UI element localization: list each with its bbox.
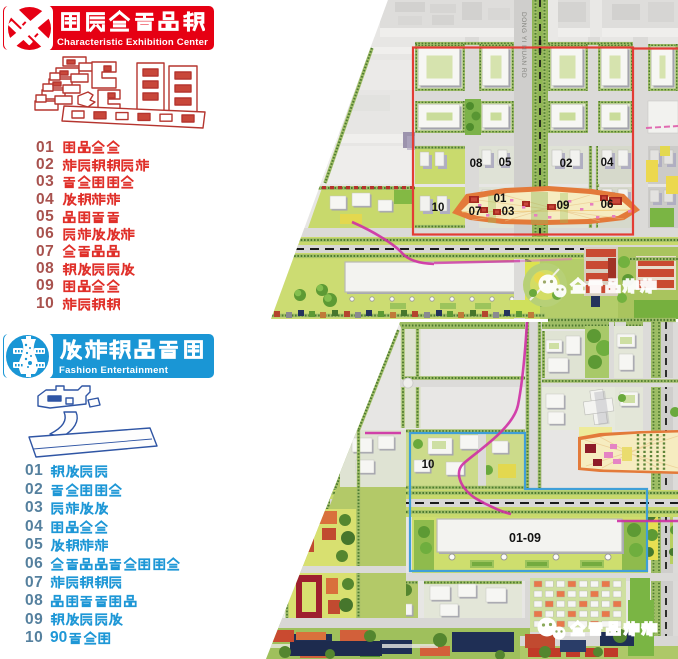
svg-text:06: 06 xyxy=(601,199,614,211)
svg-text:10: 10 xyxy=(432,202,445,214)
svg-text:DONG YI HUAN RD: DONG YI HUAN RD xyxy=(520,12,527,78)
svg-text:01-09: 01-09 xyxy=(509,531,541,545)
svg-text:07: 07 xyxy=(469,206,482,218)
svg-text:02: 02 xyxy=(560,158,573,170)
svg-text:10: 10 xyxy=(422,459,435,471)
svg-text:01: 01 xyxy=(494,193,507,205)
svg-text:09: 09 xyxy=(557,200,570,212)
svg-text:03: 03 xyxy=(502,206,515,218)
svg-text:05: 05 xyxy=(499,157,512,169)
svg-text:04: 04 xyxy=(601,157,614,169)
svg-text:08: 08 xyxy=(470,158,483,170)
